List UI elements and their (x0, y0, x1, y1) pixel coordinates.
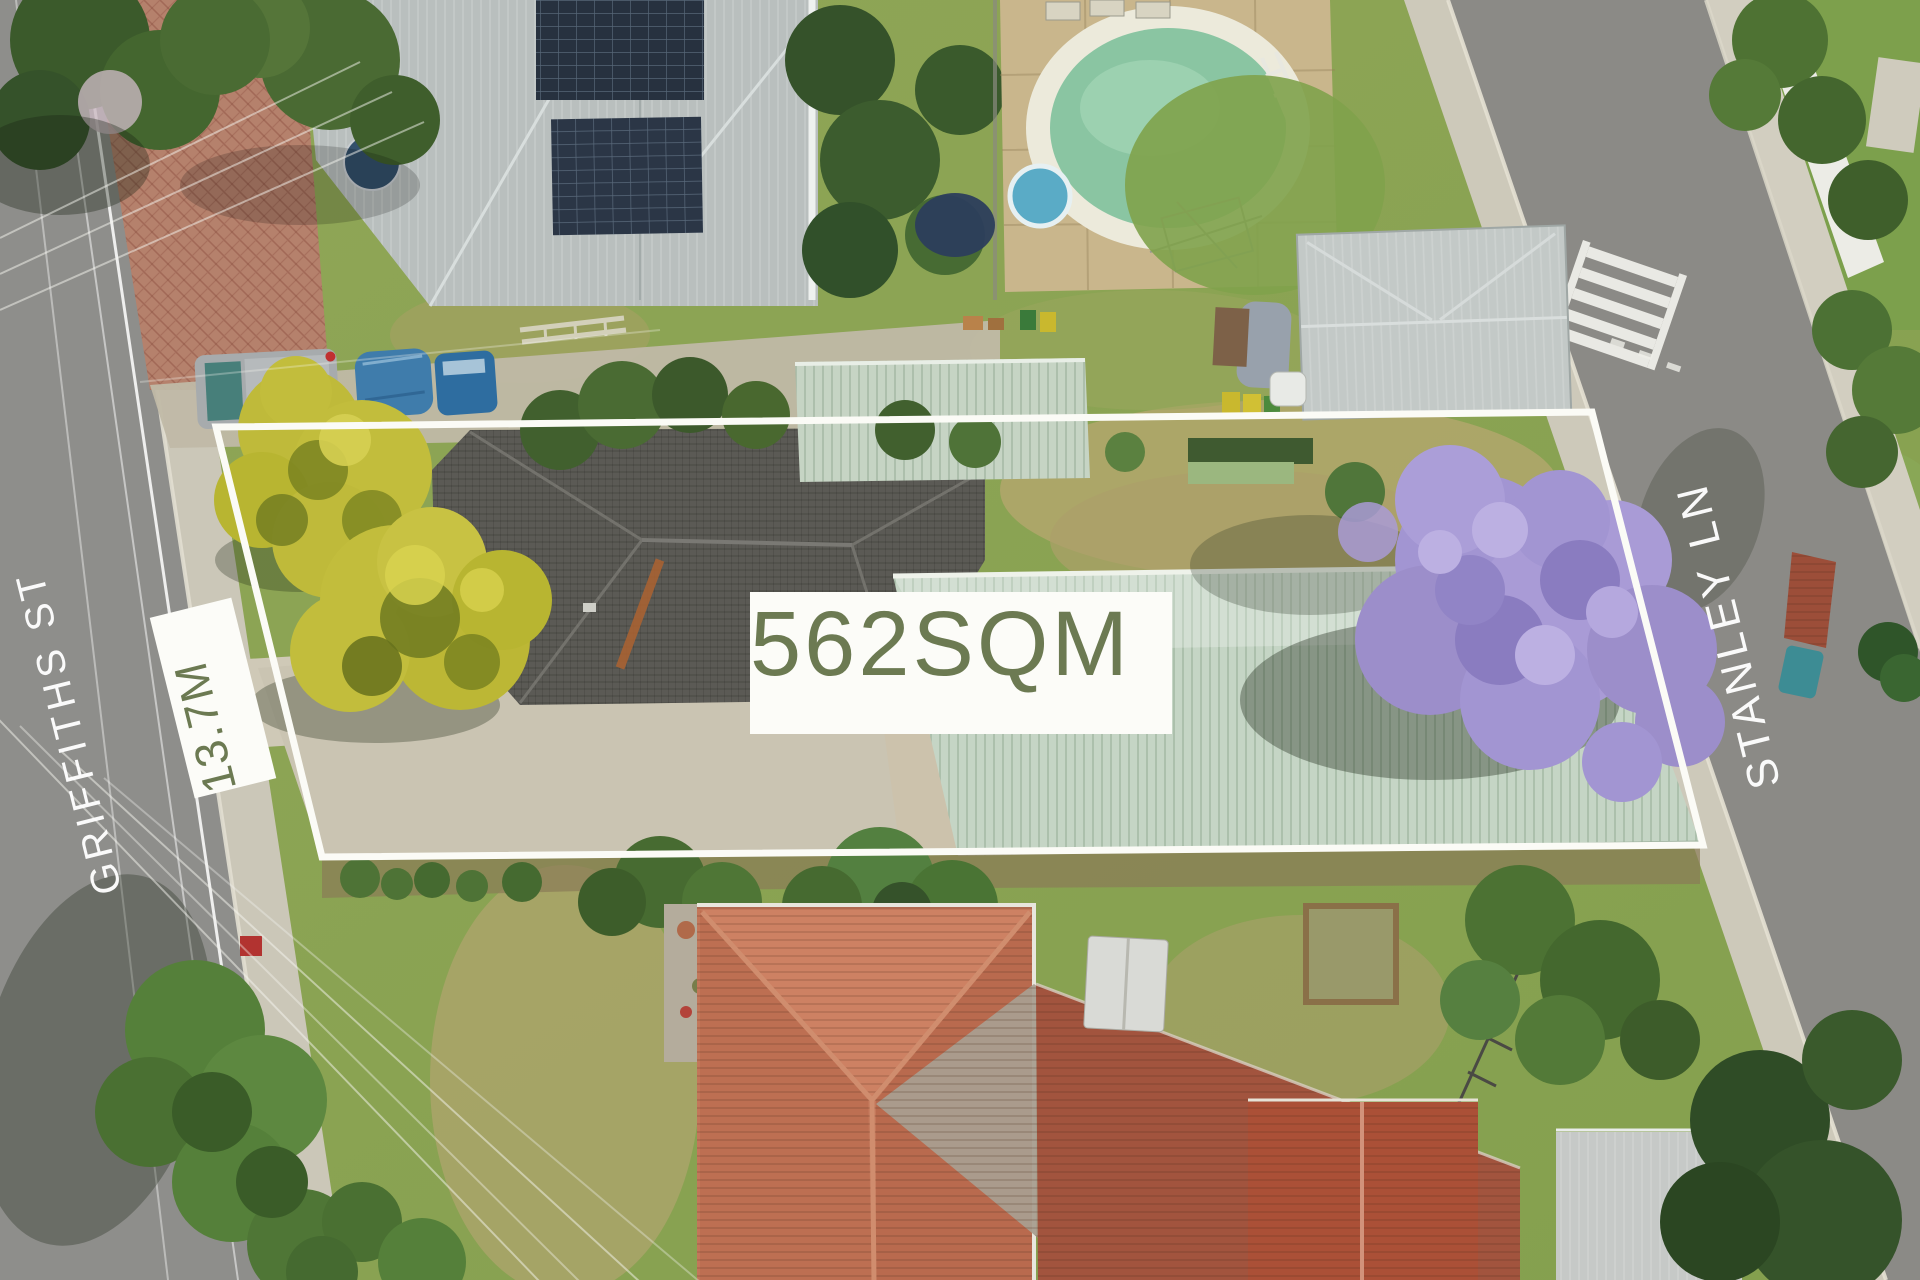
garden-bed-frame (1306, 906, 1396, 1002)
blue-car (434, 350, 498, 416)
caravan (1270, 372, 1306, 406)
area-label-text: 562SQM (750, 593, 1131, 695)
kiddie-pool (1010, 166, 1070, 226)
white-marquee (1084, 936, 1169, 1032)
aerial-property-photo: 562SQM 13.7M GRIFFITHS ST STANLEY LN (0, 0, 1920, 1280)
red-gable-roof-2 (1248, 1100, 1478, 1280)
area-label-box: 562SQM (750, 592, 1172, 734)
red-letterbox (240, 936, 262, 956)
garden-shed (1213, 307, 1250, 367)
shade-sail (915, 193, 995, 257)
